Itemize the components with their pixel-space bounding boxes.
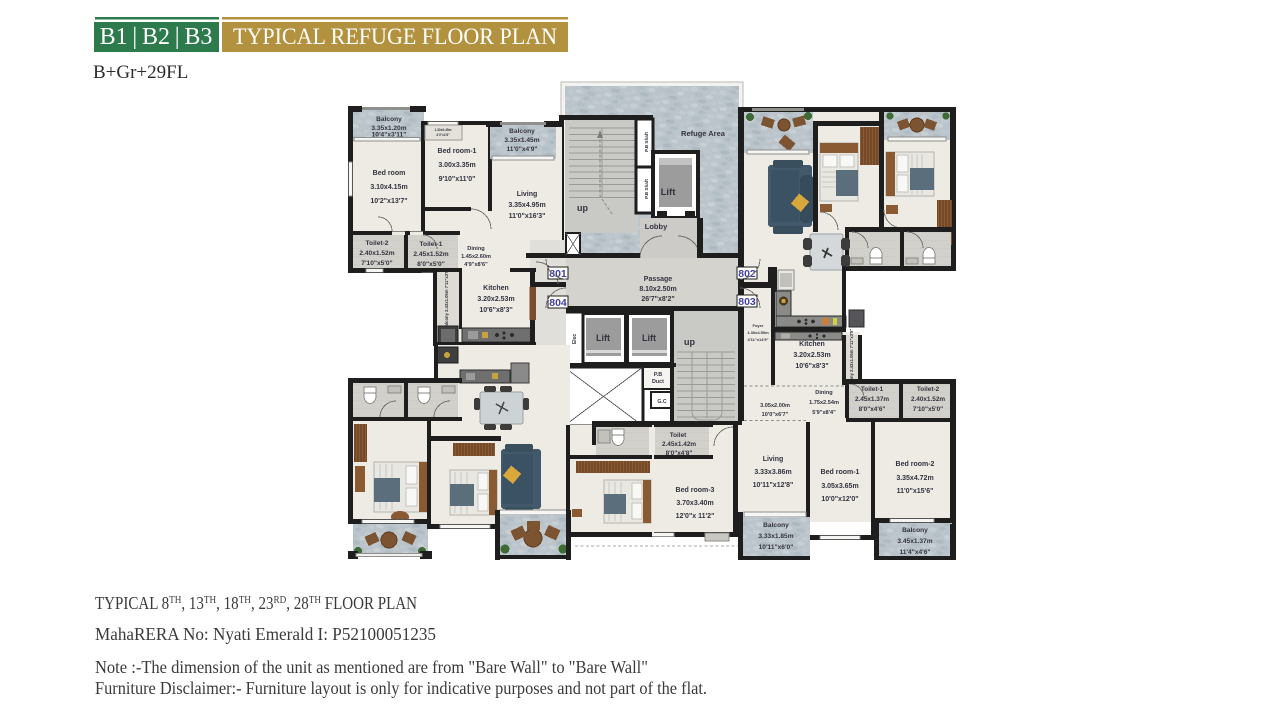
svg-text:3.70x3.40m: 3.70x3.40m xyxy=(676,500,713,507)
svg-text:MahaRERA No: Nyati Emerald I:: MahaRERA No: Nyati Emerald I: P521000512… xyxy=(95,624,436,644)
svg-text:10'2"x13'7": 10'2"x13'7" xyxy=(370,198,407,205)
svg-text:26'7"x8'2": 26'7"x8'2" xyxy=(641,296,674,303)
svg-text:TYPICAL REFUGE FLOOR PLAN: TYPICAL REFUGE FLOOR PLAN xyxy=(233,24,557,49)
svg-text:1.45x2.60m: 1.45x2.60m xyxy=(461,254,491,260)
svg-text:3.35x4.95m: 3.35x4.95m xyxy=(508,202,545,209)
svg-text:Balcony 2.43x1.05m 7'11"x3'5": Balcony 2.43x1.05m 7'11"x3'5" xyxy=(444,269,449,330)
svg-text:2.45x1.52m: 2.45x1.52m xyxy=(413,251,448,258)
svg-text:3.05x3.65m: 3.05x3.65m xyxy=(821,483,858,490)
svg-text:Bed room-1: Bed room-1 xyxy=(438,148,477,155)
svg-text:3.00x3.35m: 3.00x3.35m xyxy=(438,162,475,169)
svg-text:Toilet-1: Toilet-1 xyxy=(861,386,884,393)
svg-text:up: up xyxy=(577,203,588,213)
svg-text:Balcony: Balcony xyxy=(763,522,789,529)
svg-text:1.75x2.54m: 1.75x2.54m xyxy=(809,400,839,406)
svg-text:TYPICAL 8TH, 13TH, 18TH, 23RD,: TYPICAL 8TH, 13TH, 18TH, 23RD, 28TH FLOO… xyxy=(95,593,417,613)
svg-text:4'9"x8'6": 4'9"x8'6" xyxy=(464,262,488,268)
svg-text:10'6"x8'3": 10'6"x8'3" xyxy=(795,363,828,370)
svg-text:801: 801 xyxy=(549,268,567,280)
svg-text:up: up xyxy=(684,337,695,347)
svg-text:1.30x0.45m: 1.30x0.45m xyxy=(434,128,451,132)
svg-text:Lobby: Lobby xyxy=(645,222,668,231)
svg-text:2.40x1.52m: 2.40x1.52m xyxy=(359,250,394,257)
svg-text:Bed room-2: Bed room-2 xyxy=(896,461,935,468)
svg-text:3.10x4.15m: 3.10x4.15m xyxy=(370,184,407,191)
svg-text:5'9"x8'4": 5'9"x8'4" xyxy=(812,410,836,416)
svg-text:8'0"x5'0": 8'0"x5'0" xyxy=(417,261,445,268)
svg-text:3.20x2.53m: 3.20x2.53m xyxy=(477,296,514,303)
svg-text:Duct: Duct xyxy=(652,379,664,385)
svg-text:4'11"x14'9": 4'11"x14'9" xyxy=(747,337,768,342)
svg-text:Note :-The dimension of the un: Note :-The dimension of the unit as ment… xyxy=(95,657,648,677)
svg-text:Lift: Lift xyxy=(596,333,610,343)
svg-text:Dining: Dining xyxy=(467,246,485,252)
svg-text:10'0"x12'0": 10'0"x12'0" xyxy=(821,496,858,503)
svg-text:G.C: G.C xyxy=(657,399,666,405)
svg-text:3.33x3.86m: 3.33x3.86m xyxy=(754,469,791,476)
svg-text:3.45x1.37m: 3.45x1.37m xyxy=(897,538,932,545)
svg-text:10'6"x8'3'': 10'6"x8'3'' xyxy=(479,307,513,314)
svg-text:Lift: Lift xyxy=(642,333,656,343)
svg-text:11'4"x4'6": 11'4"x4'6" xyxy=(899,549,930,556)
svg-text:11'0"x16'3": 11'0"x16'3" xyxy=(509,213,546,220)
svg-text:Toilet-2: Toilet-2 xyxy=(366,240,389,247)
svg-text:Dining: Dining xyxy=(815,390,833,396)
svg-text:10'0"x6'7": 10'0"x6'7" xyxy=(762,412,789,418)
svg-text:3.33x1.85m: 3.33x1.85m xyxy=(758,533,793,540)
svg-text:2.40x1.52m: 2.40x1.52m xyxy=(911,396,945,403)
svg-text:Balcony: Balcony xyxy=(902,527,928,534)
svg-text:3.20x2.53m: 3.20x2.53m xyxy=(793,352,830,359)
svg-text:10'11"x6'0": 10'11"x6'0" xyxy=(759,544,794,551)
svg-text:Toilet-2: Toilet-2 xyxy=(917,386,940,393)
svg-text:2.45x1.37m: 2.45x1.37m xyxy=(855,396,889,403)
svg-text:4'4"x1'6": 4'4"x1'6" xyxy=(436,133,450,137)
svg-text:9'10"x11'0": 9'10"x11'0" xyxy=(439,176,476,183)
svg-text:Kitchen: Kitchen xyxy=(483,285,509,292)
svg-text:1.30x4.50m: 1.30x4.50m xyxy=(747,330,769,335)
svg-text:3.35x1.45m: 3.35x1.45m xyxy=(504,137,539,144)
svg-text:11'0"x4'9": 11'0"x4'9" xyxy=(506,146,537,153)
svg-text:Toilet: Toilet xyxy=(670,432,687,439)
svg-text:Balcony: Balcony xyxy=(509,128,535,135)
svg-text:B+Gr+29FL: B+Gr+29FL xyxy=(93,62,188,83)
svg-text:12'0"x 11'2": 12'0"x 11'2" xyxy=(676,513,715,520)
svg-text:11'0"x15'6": 11'0"x15'6" xyxy=(897,488,934,495)
svg-text:2.45x1.42m: 2.45x1.42m xyxy=(662,441,696,448)
svg-text:P.B Shaft: P.B Shaft xyxy=(644,179,649,199)
svg-text:Passage: Passage xyxy=(644,276,673,283)
svg-text:Refuge Area: Refuge Area xyxy=(681,129,726,138)
svg-text:10'11"x12'8": 10'11"x12'8" xyxy=(753,482,794,489)
svg-text:7'10"x5'0": 7'10"x5'0" xyxy=(361,260,392,267)
svg-text:Bed room-1: Bed room-1 xyxy=(821,469,860,476)
svg-text:Foyer: Foyer xyxy=(753,323,764,328)
svg-text:Elec: Elec xyxy=(572,334,578,345)
svg-text:8'0"x4'6": 8'0"x4'6" xyxy=(859,406,886,413)
svg-text:Lift: Lift xyxy=(661,187,677,198)
svg-text:Living: Living xyxy=(763,456,784,463)
svg-text:P.B Shaft: P.B Shaft xyxy=(644,132,649,152)
svg-text:3.35x4.72m: 3.35x4.72m xyxy=(896,475,933,482)
svg-text:B1 | B2 | B3: B1 | B2 | B3 xyxy=(100,24,213,50)
svg-text:8.10x2.50m: 8.10x2.50m xyxy=(639,286,676,293)
svg-text:Balcony: Balcony xyxy=(376,116,402,123)
svg-text:Bed room: Bed room xyxy=(373,170,406,177)
svg-text:803: 803 xyxy=(738,296,756,308)
svg-text:Furniture Disclaimer:- Furnitu: Furniture Disclaimer:- Furniture layout … xyxy=(95,678,707,698)
svg-text:804: 804 xyxy=(549,297,567,309)
svg-text:Toilet-1: Toilet-1 xyxy=(420,241,443,248)
svg-text:Kitchen: Kitchen xyxy=(799,341,825,348)
svg-text:3.05x2.00m: 3.05x2.00m xyxy=(760,403,790,409)
svg-text:Bed room-3: Bed room-3 xyxy=(676,487,715,494)
svg-text:7'10"x5'0": 7'10"x5'0" xyxy=(913,406,943,413)
svg-text:P.B: P.B xyxy=(654,372,662,378)
svg-text:Living: Living xyxy=(517,191,538,198)
